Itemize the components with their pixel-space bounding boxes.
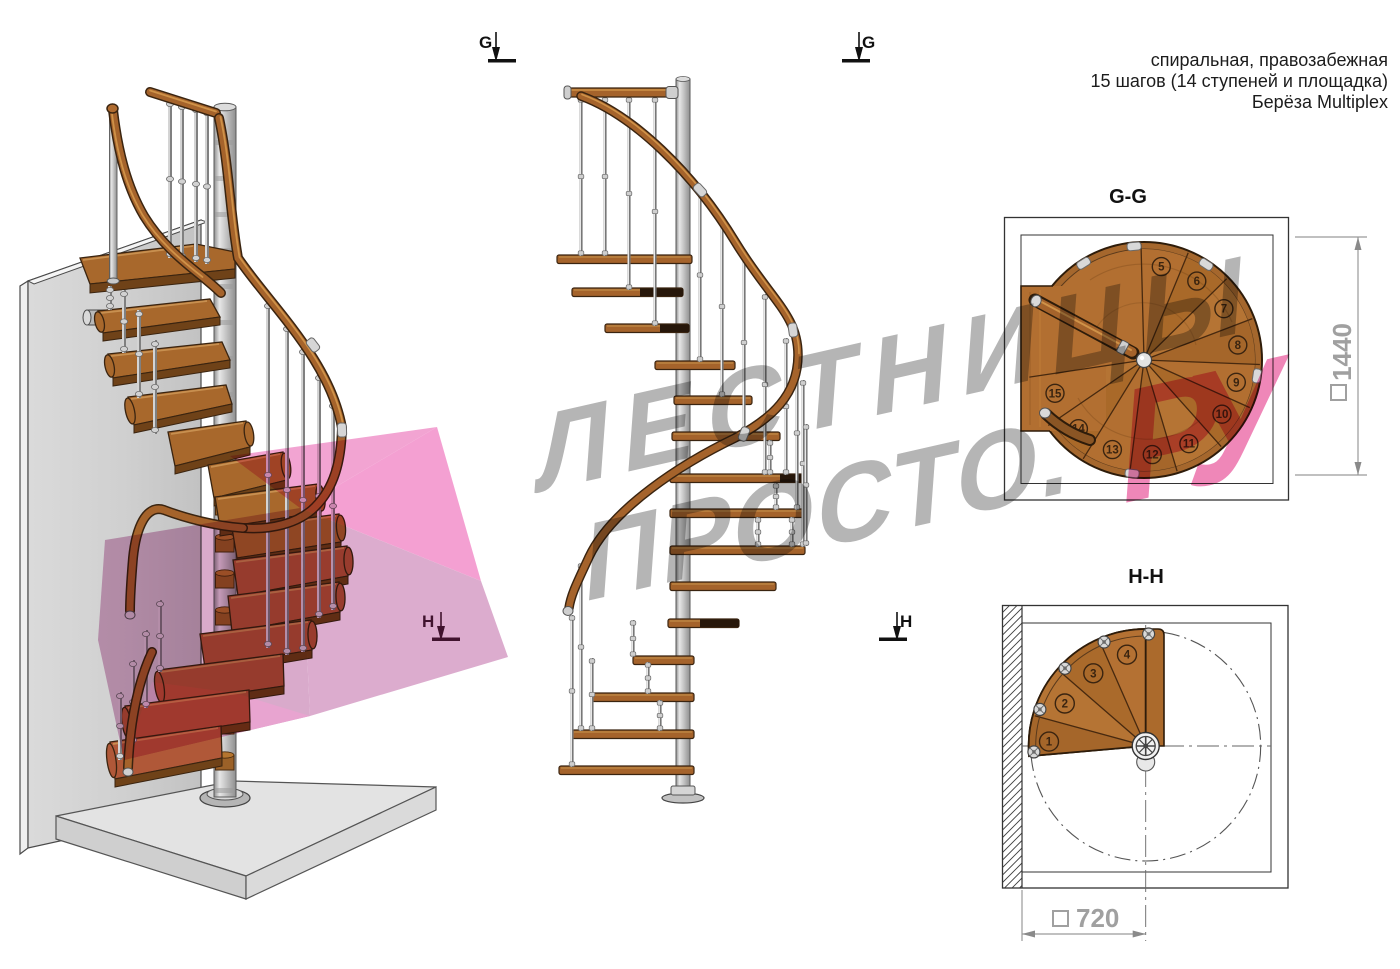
svg-text:3: 3 [1090,668,1096,680]
svg-text:H: H [900,612,912,631]
svg-text:спиральная, правозабежная: спиральная, правозабежная [1151,50,1388,70]
svg-text:Берёза Multiplex: Берёза Multiplex [1252,92,1388,112]
svg-text:H-H: H-H [1128,566,1164,588]
svg-text:13: 13 [1106,445,1119,457]
svg-text:15 шагов (14 ступеней и площад: 15 шагов (14 ступеней и площадка) [1090,71,1388,91]
svg-text:G: G [862,33,875,52]
svg-text:G: G [479,33,492,52]
svg-text:4: 4 [1124,650,1131,662]
svg-text:720: 720 [1076,903,1119,933]
svg-text:1: 1 [1046,737,1053,749]
svg-text:G-G: G-G [1109,186,1147,208]
svg-text:2: 2 [1062,699,1068,711]
svg-text:1440: 1440 [1327,323,1357,381]
